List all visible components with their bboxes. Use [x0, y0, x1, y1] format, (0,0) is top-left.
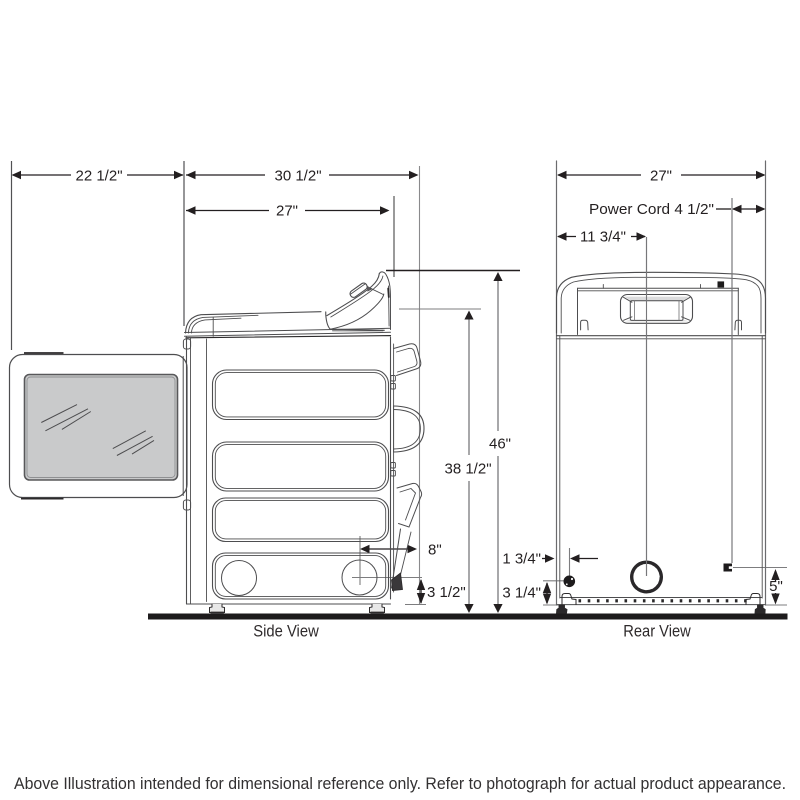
svg-text:11 3/4": 11 3/4"	[580, 229, 626, 246]
svg-text:30 1/2": 30 1/2"	[274, 168, 321, 185]
svg-text:Above Illustration intended fo: Above Illustration intended for dimensio…	[14, 774, 786, 793]
svg-text:22 1/2": 22 1/2"	[75, 168, 122, 185]
svg-text:Side View: Side View	[253, 623, 319, 641]
svg-text:27": 27"	[650, 168, 672, 185]
svg-text:Power Cord 4 1/2": Power Cord 4 1/2"	[589, 201, 714, 218]
svg-text:Rear View: Rear View	[623, 623, 691, 641]
svg-text:3 1/4": 3 1/4"	[502, 585, 541, 602]
svg-text:27": 27"	[276, 203, 298, 220]
svg-text:3 1/2": 3 1/2"	[427, 584, 466, 601]
svg-text:8": 8"	[428, 542, 442, 559]
svg-text:5": 5"	[769, 578, 783, 595]
svg-text:46": 46"	[489, 436, 511, 453]
svg-text:38 1/2": 38 1/2"	[444, 461, 491, 478]
svg-text:1 3/4": 1 3/4"	[502, 551, 541, 568]
